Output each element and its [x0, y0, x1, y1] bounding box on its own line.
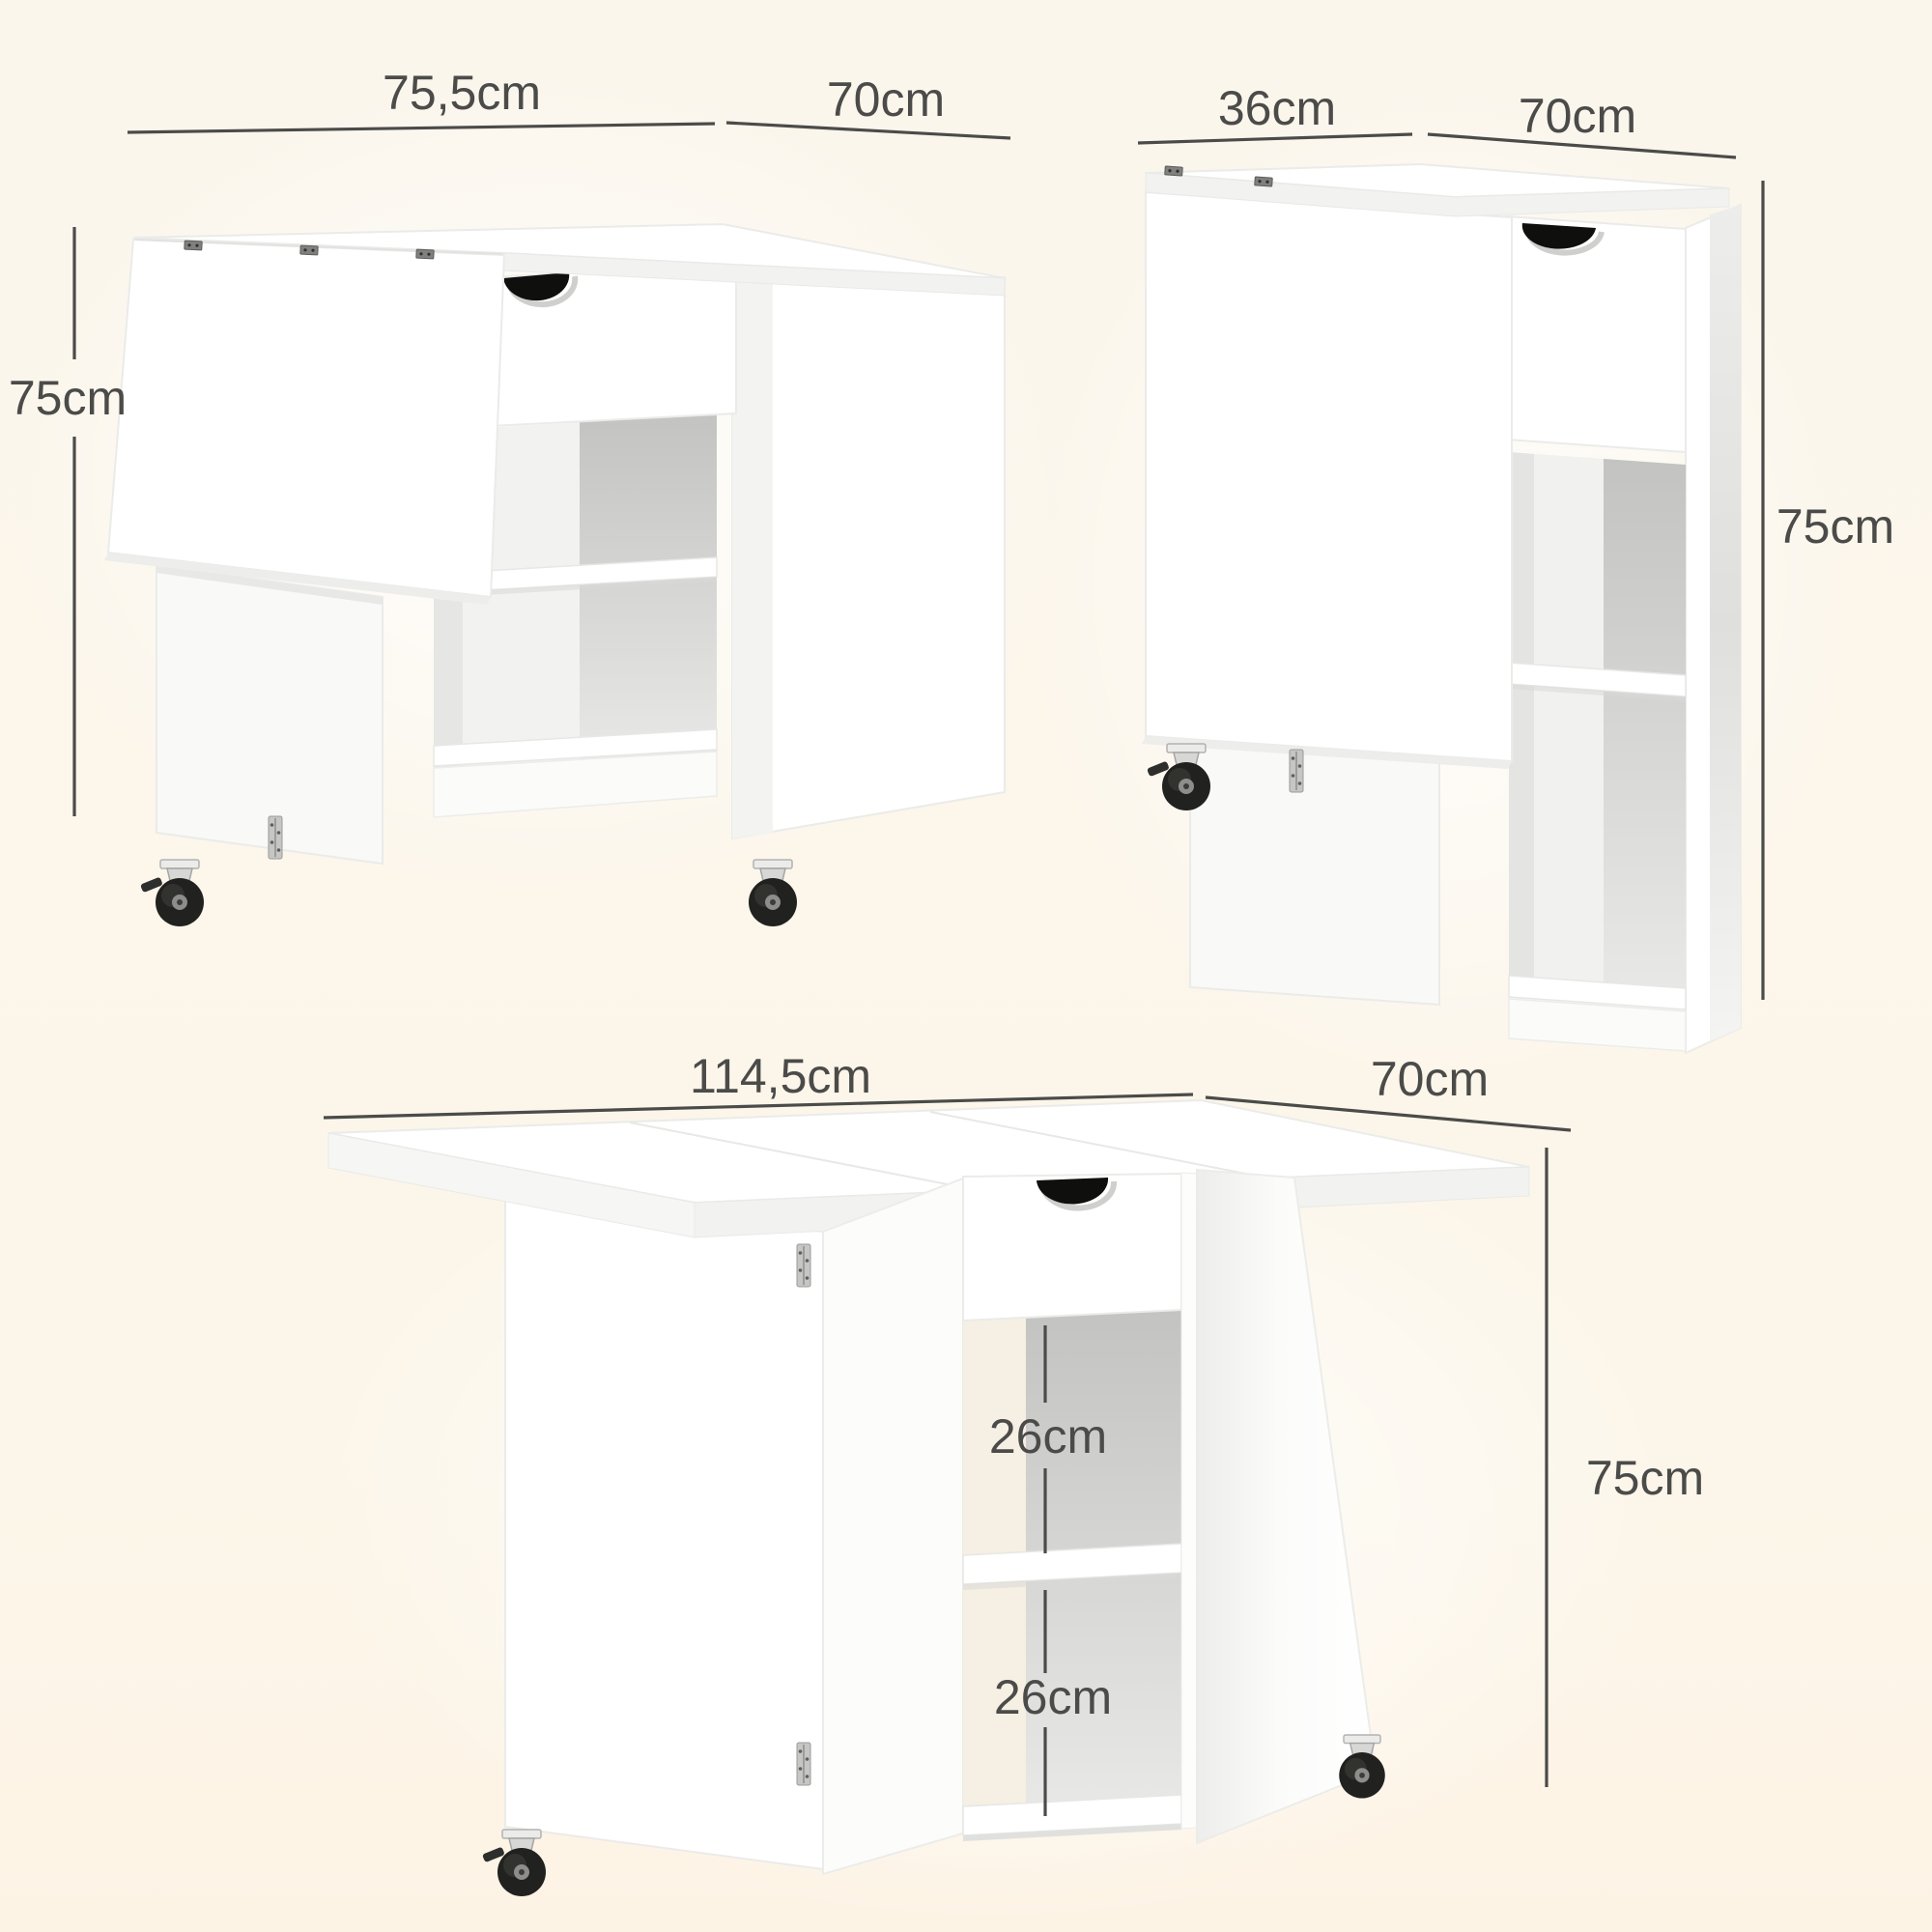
depth-label: 70cm: [827, 72, 945, 127]
diagram-canvas: 75,5cm 70cm 75cm: [0, 0, 1932, 1932]
leaf-hinge-icon: [1255, 177, 1273, 186]
width-label: 36cm: [1218, 81, 1336, 135]
leaf-hinge-icon: [300, 245, 318, 255]
leaf-hinge-icon: [416, 249, 434, 259]
height-label: 75cm: [1586, 1451, 1704, 1505]
cabinet-right-wall: [1181, 1173, 1197, 1829]
side-panel: [732, 277, 1005, 838]
leaf-hinge-icon: [1165, 166, 1183, 176]
interior-shadow-wall: [580, 414, 717, 771]
drop-leaf-folded: [108, 240, 504, 597]
leg-hinge-icon: [797, 1244, 810, 1287]
height-label: 75cm: [1776, 499, 1894, 554]
width-label: 114,5cm: [690, 1049, 871, 1103]
cabinet-divider: [823, 1179, 963, 1874]
upper-shelf-label: 26cm: [989, 1409, 1107, 1463]
drop-leaf-folded: [1146, 192, 1512, 761]
fold-leg-panel: [1190, 740, 1439, 1005]
depth-label: 70cm: [1519, 89, 1636, 143]
lower-shelf-label: 26cm: [994, 1670, 1112, 1724]
drawer-front: [1507, 216, 1686, 452]
product-dimension-diagram: 75,5cm 70cm 75cm: [0, 0, 1932, 1932]
interior-shadow-wall: [1604, 459, 1686, 1007]
depth-label: 70cm: [1371, 1052, 1489, 1106]
fold-leg-panel: [505, 1189, 823, 1869]
side-panel-shade: [732, 280, 773, 838]
leaf-hinge-icon: [185, 241, 202, 250]
height-label: 75cm: [9, 371, 127, 425]
width-label: 75,5cm: [383, 66, 541, 120]
leg-hinge-icon: [1290, 750, 1303, 792]
side-panel-shade: [1710, 205, 1741, 1041]
leg-hinge-icon: [269, 816, 282, 859]
leg-hinge-icon: [797, 1743, 810, 1785]
